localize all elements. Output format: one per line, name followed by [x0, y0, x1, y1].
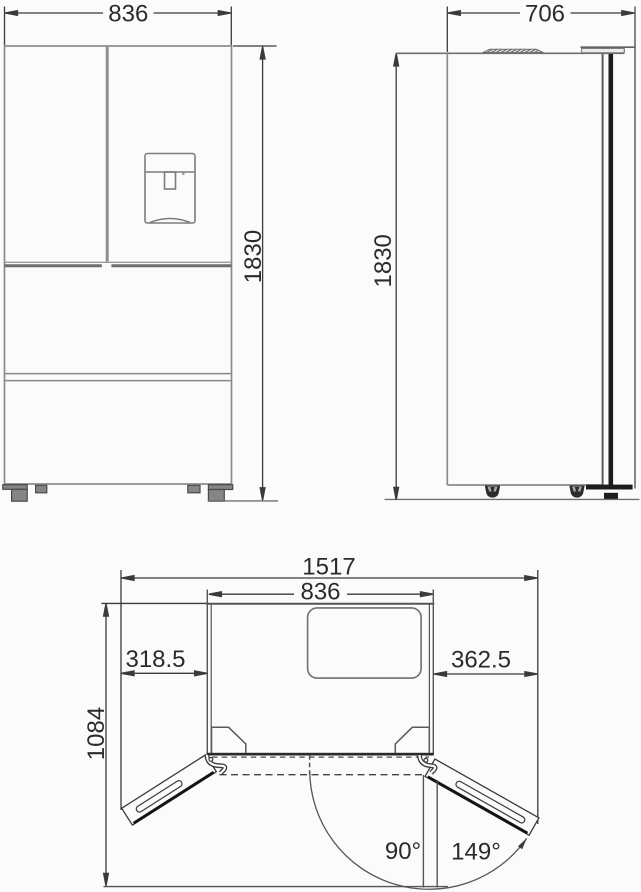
svg-text:1084: 1084 — [83, 707, 110, 760]
svg-text:149°: 149° — [451, 839, 501, 866]
svg-text:1830: 1830 — [370, 234, 397, 287]
svg-text:836: 836 — [300, 579, 340, 606]
svg-text:836: 836 — [108, 1, 148, 28]
svg-text:318.5: 318.5 — [125, 646, 185, 673]
svg-text:1517: 1517 — [302, 554, 355, 581]
svg-text:706: 706 — [525, 1, 565, 28]
svg-text:90°: 90° — [385, 838, 421, 865]
svg-text:1830: 1830 — [240, 230, 267, 283]
svg-text:362.5: 362.5 — [451, 647, 511, 674]
